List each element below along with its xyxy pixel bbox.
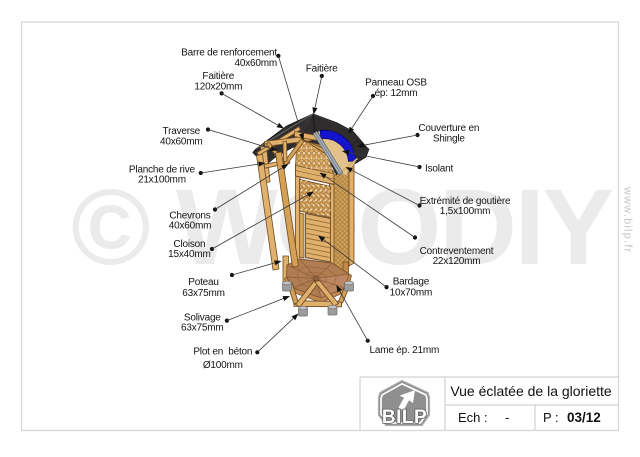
svg-text:63x75mm: 63x75mm bbox=[181, 323, 224, 334]
svg-text:10x70mm: 10x70mm bbox=[390, 288, 433, 299]
svg-text:Poteau: Poteau bbox=[188, 277, 219, 288]
svg-text:Traverse: Traverse bbox=[163, 126, 201, 137]
svg-text:Barre de renforcement: Barre de renforcement bbox=[181, 48, 277, 59]
svg-text:120x20mm: 120x20mm bbox=[194, 82, 242, 93]
svg-text:40x60mm: 40x60mm bbox=[160, 137, 203, 148]
svg-text:Plot en béton: Plot en béton bbox=[193, 347, 252, 358]
svg-text:-: - bbox=[505, 410, 509, 425]
svg-text:Vue éclatée de la gloriette: Vue éclatée de la gloriette bbox=[450, 383, 612, 399]
svg-text:63x75mm: 63x75mm bbox=[182, 288, 225, 299]
svg-text:40x60mm: 40x60mm bbox=[234, 58, 277, 69]
svg-text:22x120mm: 22x120mm bbox=[433, 256, 481, 267]
svg-text:Shingle: Shingle bbox=[433, 134, 466, 145]
svg-text:Lame ép. 21mm: Lame ép. 21mm bbox=[369, 345, 439, 356]
svg-text:Ø100mm: Ø100mm bbox=[203, 360, 243, 371]
svg-text:Isolant: Isolant bbox=[425, 164, 453, 175]
svg-text:40x60mm: 40x60mm bbox=[169, 221, 212, 232]
svg-text:ép: 12mm: ép: 12mm bbox=[375, 88, 418, 99]
svg-text:BILP: BILP bbox=[382, 407, 427, 428]
svg-text:Couverture en: Couverture en bbox=[418, 123, 479, 134]
svg-text:Ech :: Ech : bbox=[458, 410, 488, 425]
svg-text:15x40mm: 15x40mm bbox=[168, 249, 211, 260]
svg-text:Panneau OSB: Panneau OSB bbox=[365, 78, 427, 89]
svg-text:1,5x100mm: 1,5x100mm bbox=[440, 206, 490, 217]
svg-text:Bardage: Bardage bbox=[393, 277, 430, 288]
svg-text:21x100mm: 21x100mm bbox=[138, 175, 186, 186]
svg-text:Faitière: Faitière bbox=[202, 71, 234, 82]
svg-text:P :: P : bbox=[543, 410, 559, 425]
svg-text:Faitière: Faitière bbox=[306, 64, 338, 75]
svg-text:www.bilp.fr: www.bilp.fr bbox=[622, 186, 634, 253]
svg-text:03/12: 03/12 bbox=[567, 410, 601, 425]
